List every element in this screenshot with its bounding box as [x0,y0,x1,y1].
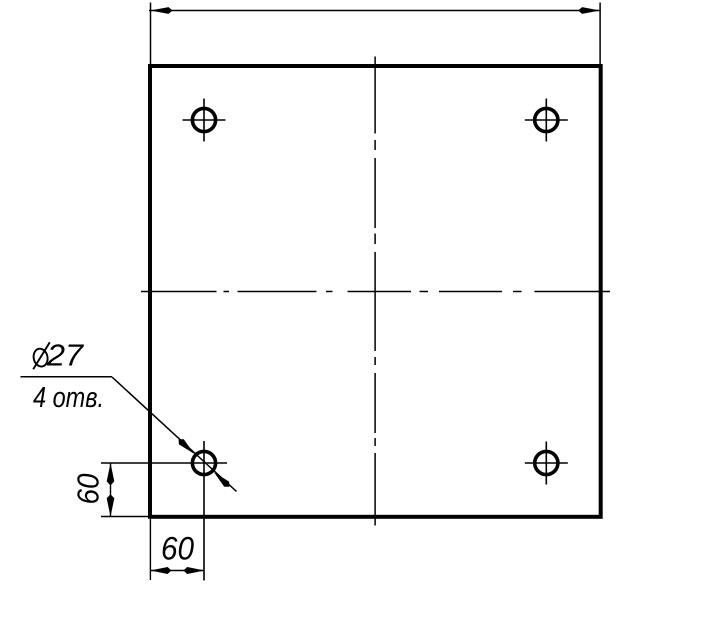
svg-text:4 отв.: 4 отв. [33,382,104,414]
svg-text:27: 27 [46,338,85,373]
svg-text:60: 60 [72,473,106,504]
svg-text:60: 60 [161,531,194,567]
